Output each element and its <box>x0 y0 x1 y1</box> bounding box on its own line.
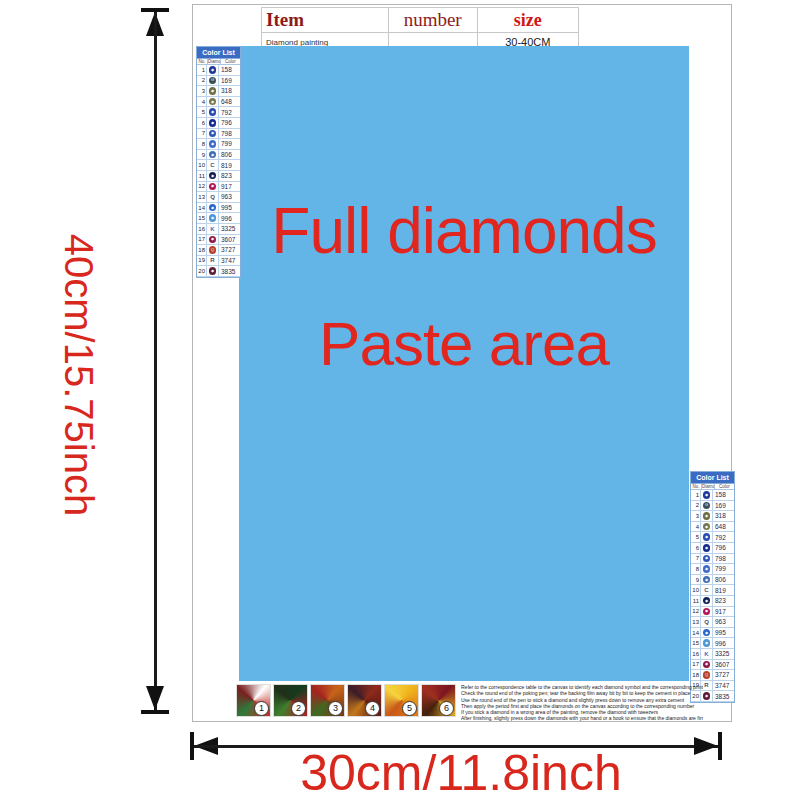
step-thumbnail: 2 <box>273 684 308 717</box>
color-list-row: 11◆823 <box>691 596 734 607</box>
dmc-code: 792 <box>219 109 240 116</box>
dmc-code: 823 <box>219 172 240 179</box>
dmc-code: 996 <box>713 640 734 647</box>
symbol-cell: ◆ <box>701 554 713 564</box>
dmc-code: 917 <box>219 183 240 190</box>
width-dimension-label: 30cm/11.8inch <box>192 744 730 800</box>
diamond-symbol-icon: ◆ <box>209 172 217 180</box>
step-number-badge: 1 <box>254 701 269 716</box>
symbol-cell: ◆ <box>701 522 713 532</box>
color-list-row: 7◆798 <box>691 554 734 565</box>
dmc-code: 3607 <box>713 661 734 668</box>
color-number: 12 <box>691 607 701 617</box>
color-number: 11 <box>197 171 207 181</box>
step-number-badge: 2 <box>291 701 306 716</box>
instruction-line: Use the round end of the pen to stick a … <box>461 697 703 703</box>
symbol-cell: ◆ <box>701 564 713 574</box>
number-header: number <box>388 8 477 33</box>
diamond-symbol-icon: ◆ <box>703 576 711 584</box>
color-number: 14 <box>197 203 207 213</box>
color-number: 4 <box>691 522 701 532</box>
dmc-code: 3727 <box>219 246 240 253</box>
step-thumbnail: 6 <box>421 684 456 717</box>
color-list-row: 10C819 <box>691 585 734 596</box>
dmc-code: 158 <box>219 66 240 73</box>
symbol-cell: ◆ <box>207 65 219 75</box>
color-list-row: 4◆648 <box>691 522 734 533</box>
diamond-symbol-icon: ◆ <box>209 66 217 74</box>
color-list-row: 9◆806 <box>691 575 734 586</box>
dmc-code: 3325 <box>713 650 734 657</box>
color-number: 3 <box>197 86 207 96</box>
step-number-badge: 6 <box>439 701 454 716</box>
arrow-shaft <box>154 12 157 710</box>
color-list-row: 20◆3835 <box>197 266 240 277</box>
diamond-symbol-letter: R <box>210 257 214 263</box>
step-thumbnail: 4 <box>347 684 382 717</box>
dmc-code: 806 <box>219 151 240 158</box>
color-list-row: 18Q3727 <box>691 670 734 681</box>
dmc-code: 3325 <box>219 225 240 232</box>
arrow-end-cap <box>141 710 169 714</box>
color-list-row: 16K3325 <box>197 224 240 235</box>
dmc-code: 792 <box>713 534 734 541</box>
paste-area-title-line2: Paste area <box>319 308 609 379</box>
color-number: 19 <box>197 256 207 266</box>
dmc-code: 823 <box>713 597 734 604</box>
color-number: 9 <box>691 575 701 585</box>
color-number: 1 <box>691 490 701 500</box>
symbol-cell: ◆ <box>207 182 219 192</box>
item-header: Item <box>262 8 389 33</box>
color-list-row: 2G169 <box>691 501 734 512</box>
diamond-symbol-letter: K <box>210 226 214 232</box>
symbol-cell: K <box>701 649 713 659</box>
diamond-symbol-icon: ◆ <box>209 98 217 106</box>
column-symbol-label: Diamond <box>208 59 221 64</box>
diamond-symbol-icon: ◆ <box>209 151 217 159</box>
symbol-cell: ◆ <box>701 596 713 606</box>
symbol-cell: ◆ <box>207 129 219 139</box>
symbol-cell: Q <box>207 245 219 255</box>
color-number: 15 <box>197 213 207 223</box>
color-list-row: 10C819 <box>197 160 240 171</box>
dmc-code: 963 <box>713 618 734 625</box>
color-number: 10 <box>197 160 207 170</box>
symbol-cell: ◆ <box>207 235 219 245</box>
diamond-symbol-icon: G <box>209 77 217 85</box>
diamond-symbol-icon: G <box>703 502 711 510</box>
color-number: 14 <box>691 628 701 638</box>
symbol-cell: K <box>207 224 219 234</box>
step-thumbnail: 5 <box>384 684 419 717</box>
symbol-cell: ◆ <box>701 511 713 521</box>
column-color-label: Color <box>715 484 734 489</box>
color-number: 6 <box>197 118 207 128</box>
dmc-code: 3747 <box>219 257 240 264</box>
dmc-code: 796 <box>713 544 734 551</box>
color-list-row: 3◆318 <box>691 511 734 522</box>
color-list-row: 8◆799 <box>691 564 734 575</box>
color-list-row: 5◆792 <box>197 107 240 118</box>
column-symbol-label: Diamond <box>702 484 715 489</box>
symbol-cell: ◆ <box>207 266 219 276</box>
diamond-symbol-icon: ◆ <box>209 119 217 127</box>
size-header: size <box>477 8 578 33</box>
dmc-code: 158 <box>713 491 734 498</box>
instruction-line: After finishing, slightly press down the… <box>461 715 703 721</box>
color-number: 8 <box>197 139 207 149</box>
color-number: 9 <box>197 150 207 160</box>
symbol-cell: R <box>207 256 219 266</box>
dmc-code: 799 <box>713 565 734 572</box>
diamond-symbol-icon: ◆ <box>209 140 217 148</box>
diamond-symbol-icon: ◆ <box>703 597 711 605</box>
color-number: 17 <box>197 235 207 245</box>
diamond-symbol-letter: R <box>704 682 708 688</box>
color-number: 4 <box>197 97 207 107</box>
diamond-symbol-icon: ◆ <box>703 523 711 531</box>
step-number-badge: 3 <box>328 701 343 716</box>
diamond-symbol-icon: ◆ <box>703 512 711 520</box>
step-number-badge: 4 <box>365 701 380 716</box>
dmc-code: 799 <box>219 140 240 147</box>
color-list-row: 15◆996 <box>197 213 240 224</box>
step-number-badge: 5 <box>402 701 417 716</box>
color-list-row: 13Q963 <box>197 192 240 203</box>
color-number: 8 <box>691 564 701 574</box>
diamond-symbol-icon: ◆ <box>703 565 711 573</box>
color-number: 11 <box>691 596 701 606</box>
dmc-code: 318 <box>219 87 240 94</box>
color-list-row: 13Q963 <box>691 617 734 628</box>
height-dimension-arrow <box>141 8 169 714</box>
color-number: 16 <box>691 649 701 659</box>
diamond-symbol-icon: ◆ <box>209 267 217 275</box>
dmc-code: 917 <box>713 608 734 615</box>
symbol-cell: ◆ <box>701 660 713 670</box>
diamond-symbol-icon: Q <box>209 246 217 254</box>
diamond-symbol-icon: ◆ <box>703 533 711 541</box>
color-number: 12 <box>197 182 207 192</box>
symbol-cell: ◆ <box>207 171 219 181</box>
color-number: 6 <box>691 543 701 553</box>
color-list-row: 6◆796 <box>691 543 734 554</box>
diamond-symbol-letter: Q <box>210 194 215 200</box>
color-list-row: 17◆3607 <box>691 660 734 671</box>
color-list-title: Color List <box>691 472 734 484</box>
arrow-down-icon <box>146 686 164 710</box>
symbol-cell: ◆ <box>207 107 219 117</box>
dmc-code: 995 <box>713 629 734 636</box>
symbol-cell: ◆ <box>701 628 713 638</box>
paste-area: Full diamonds Paste area <box>239 46 689 681</box>
symbol-cell: ◆ <box>207 139 219 149</box>
color-number: 18 <box>197 245 207 255</box>
diamond-symbol-icon: ◆ <box>209 183 217 191</box>
dmc-code: 3835 <box>713 693 734 700</box>
paste-area-title-line1: Full diamonds <box>271 194 656 268</box>
height-dimension-label: 40cm/15.75inch <box>51 205 101 545</box>
symbol-cell: G <box>701 501 713 511</box>
instruction-line: Check the round end of the poking pen; t… <box>461 690 703 696</box>
color-list-row: 2G169 <box>197 76 240 87</box>
color-list-row: 1◆158 <box>197 65 240 76</box>
symbol-cell: ◆ <box>207 150 219 160</box>
diamond-symbol-icon: ◆ <box>209 130 217 138</box>
color-number: 3 <box>691 511 701 521</box>
color-list-row: 3◆318 <box>197 86 240 97</box>
color-list-row: 1◆158 <box>691 490 734 501</box>
dmc-code: 798 <box>713 555 734 562</box>
dmc-code: 3727 <box>713 671 734 678</box>
symbol-cell: ◆ <box>701 490 713 500</box>
color-list-row: 18Q3727 <box>197 245 240 256</box>
diamond-symbol-letter: C <box>210 162 214 168</box>
symbol-cell: Q <box>701 617 713 627</box>
symbol-cell: Q <box>701 670 713 680</box>
color-number: 15 <box>691 638 701 648</box>
dmc-code: 318 <box>713 512 734 519</box>
color-number: 1 <box>197 65 207 75</box>
color-list-row: 15◆996 <box>691 638 734 649</box>
column-no-label: No. <box>197 59 208 64</box>
step-thumbnail: 3 <box>310 684 345 717</box>
symbol-cell: ◆ <box>701 575 713 585</box>
dmc-code: 169 <box>713 502 734 509</box>
symbol-cell: C <box>207 160 219 170</box>
diamond-symbol-letter: Q <box>704 619 709 625</box>
diamond-symbol-icon: ◆ <box>209 236 217 244</box>
dmc-code: 995 <box>219 204 240 211</box>
symbol-cell: ◆ <box>207 118 219 128</box>
dmc-code: 3835 <box>219 268 240 275</box>
symbol-cell: ◆ <box>207 203 219 213</box>
instruction-text: Refer to the correspondence table to the… <box>461 684 703 722</box>
color-list-row: 14◆995 <box>691 628 734 639</box>
dmc-code: 3747 <box>713 682 734 689</box>
column-no-label: No. <box>691 484 702 489</box>
color-list-title: Color List <box>197 47 240 59</box>
dmc-code: 648 <box>713 523 734 530</box>
product-diagram: 40cm/15.75inch Item number size Diamond … <box>0 0 800 800</box>
diamond-symbol-letter: K <box>704 651 708 657</box>
color-number: 20 <box>197 266 207 276</box>
color-list-row: 9◆806 <box>197 150 240 161</box>
diamond-symbol-letter: C <box>704 587 708 593</box>
step-thumbnails: 123456 <box>236 684 456 717</box>
dmc-code: 169 <box>219 77 240 84</box>
diamond-symbol-icon: ◆ <box>209 87 217 95</box>
diamond-symbol-icon: ◆ <box>703 608 711 616</box>
diamond-symbol-icon: ◆ <box>209 108 217 116</box>
dmc-code: 819 <box>713 587 734 594</box>
canvas-sheet: Item number size Diamond painting 30-40C… <box>192 4 732 722</box>
diamond-symbol-icon: ◆ <box>703 491 711 499</box>
color-number: 13 <box>197 192 207 202</box>
symbol-cell: ◆ <box>701 532 713 542</box>
diamond-symbol-icon: ◆ <box>703 544 711 552</box>
color-number: 5 <box>197 107 207 117</box>
color-number: 7 <box>691 554 701 564</box>
diamond-symbol-icon: ◆ <box>209 204 217 212</box>
dmc-code: 3607 <box>219 236 240 243</box>
symbol-cell: G <box>207 76 219 86</box>
color-list-right: Color ListNo.DiamondColor1◆1582G1693◆318… <box>690 471 735 703</box>
color-list-row: 12◆917 <box>691 607 734 618</box>
symbol-cell: Q <box>207 192 219 202</box>
dmc-code: 648 <box>219 98 240 105</box>
color-list-row: 7◆798 <box>197 129 240 140</box>
color-list-row: 8◆799 <box>197 139 240 150</box>
diamond-symbol-icon: Q <box>703 671 711 679</box>
color-number: 10 <box>691 585 701 595</box>
symbol-cell: C <box>701 585 713 595</box>
color-number: 17 <box>691 660 701 670</box>
color-list-left: Color ListNo.DiamondColor1◆1582G1693◆318… <box>196 46 241 278</box>
dmc-code: 819 <box>219 162 240 169</box>
symbol-cell: ◆ <box>207 213 219 223</box>
color-list-row: 14◆995 <box>197 203 240 214</box>
dmc-code: 996 <box>219 215 240 222</box>
symbol-cell: ◆ <box>207 86 219 96</box>
diamond-symbol-icon: ◆ <box>703 692 711 700</box>
color-number: 16 <box>197 224 207 234</box>
column-color-label: Color <box>221 59 240 64</box>
color-number: 18 <box>691 670 701 680</box>
dmc-code: 963 <box>219 193 240 200</box>
color-list-row: 4◆648 <box>197 97 240 108</box>
symbol-cell: ◆ <box>207 97 219 107</box>
dmc-code: 796 <box>219 119 240 126</box>
symbol-cell: ◆ <box>701 543 713 553</box>
dmc-code: 806 <box>713 576 734 583</box>
color-list-row: 11◆823 <box>197 171 240 182</box>
step-thumbnail: 1 <box>236 684 271 717</box>
color-number: 5 <box>691 532 701 542</box>
dmc-code: 798 <box>219 130 240 137</box>
symbol-cell: ◆ <box>701 607 713 617</box>
color-list-row: 17◆3607 <box>197 235 240 246</box>
color-number: 7 <box>197 129 207 139</box>
color-list-row: 5◆792 <box>691 532 734 543</box>
diamond-symbol-icon: ◆ <box>209 214 217 222</box>
color-list-row: 6◆796 <box>197 118 240 129</box>
diamond-symbol-icon: ◆ <box>703 661 711 669</box>
color-number: 13 <box>691 617 701 627</box>
color-number: 2 <box>691 501 701 511</box>
color-list-row: 12◆917 <box>197 182 240 193</box>
diamond-symbol-icon: ◆ <box>703 629 711 637</box>
symbol-cell: ◆ <box>701 638 713 648</box>
color-list-row: 19R3747 <box>197 256 240 267</box>
color-list-row: 16K3325 <box>691 649 734 660</box>
diamond-symbol-icon: ◆ <box>703 639 711 647</box>
diamond-symbol-icon: ◆ <box>703 555 711 563</box>
color-number: 2 <box>197 76 207 86</box>
